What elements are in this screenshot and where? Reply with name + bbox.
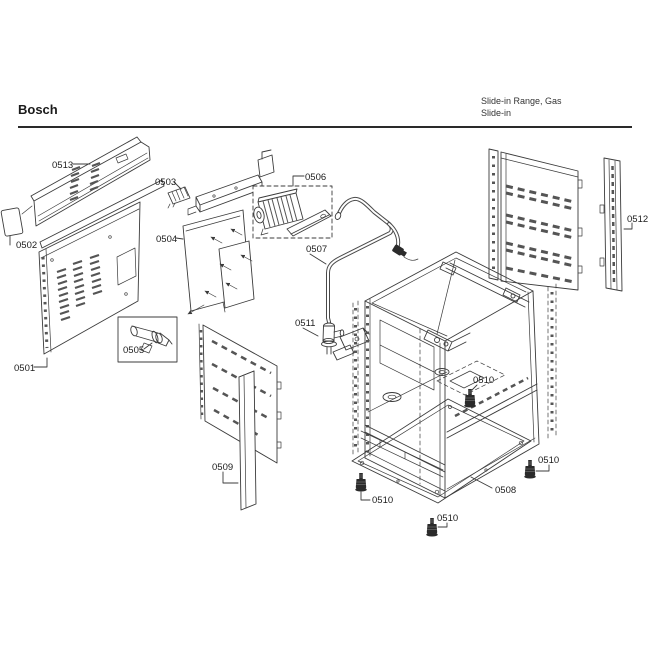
leader-0506 (293, 176, 304, 186)
part-label-0510-a: 0510 (473, 375, 494, 386)
part-label-0502: 0502 (16, 240, 37, 251)
part-label-0510-d: 0510 (538, 455, 559, 466)
leveling-foot-0510-b (355, 473, 370, 500)
support-rail (40, 180, 164, 248)
part-label-0506: 0506 (305, 172, 326, 183)
part-label-0510-c: 0510 (437, 513, 458, 524)
leader-0510-b (361, 492, 370, 500)
leader-0501 (34, 358, 47, 367)
leader-0508 (471, 477, 492, 488)
part-label-0511: 0511 (295, 318, 315, 329)
leader-0507 (310, 254, 326, 264)
part-label-0505: 0505 (123, 345, 144, 356)
exploded-parts-drawing: 0513 0503 0506 0512 0502 0504 0507 0511 … (0, 0, 650, 650)
leader-0509 (223, 472, 238, 483)
part-label-0503: 0503 (155, 177, 176, 188)
blower-assembly-0506 (252, 176, 332, 238)
part-label-0504: 0504 (156, 234, 177, 245)
trim-strip-0509 (223, 371, 256, 510)
part-label-0508: 0508 (495, 485, 516, 496)
part-label-0509: 0509 (212, 462, 233, 473)
part-label-0507: 0507 (306, 244, 327, 255)
part-label-0510-b: 0510 (372, 495, 393, 506)
part-label-0512: 0512 (627, 214, 648, 225)
back-panel (489, 149, 582, 290)
leveling-foot-0510-a (464, 385, 477, 408)
parts-diagram-page: Bosch Slide-in Range, Gas Slide-in (0, 0, 650, 650)
part-label-0501: 0501 (14, 363, 35, 374)
part-label-0513: 0513 (52, 160, 73, 171)
range-chassis (353, 252, 556, 498)
leader-0511 (303, 328, 318, 336)
bracket-panel-0504 (176, 210, 254, 314)
